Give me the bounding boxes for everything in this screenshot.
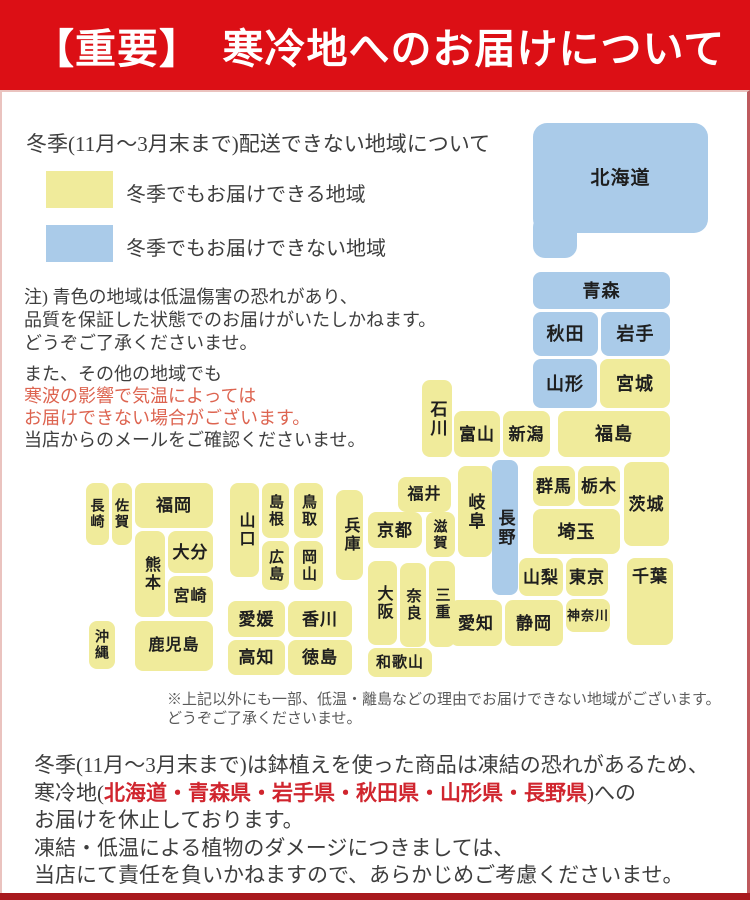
prefecture-shiga: 滋賀 (426, 512, 455, 557)
text-line: 寒冷地(北海道・青森県・岩手県・秋田県・山形県・長野県)への (34, 780, 709, 808)
text-line: どうぞご了承くださいませ。 (167, 710, 721, 729)
prefecture-hyogo: 兵庫 (336, 490, 363, 580)
prefecture-aichi: 愛知 (450, 600, 502, 646)
prefecture-okayama: 岡山 (294, 541, 323, 590)
prefecture-yamanashi: 山梨 (519, 558, 563, 596)
plain-text: 寒冷地( (34, 781, 104, 805)
prefecture-saga: 佐賀 (112, 483, 132, 545)
prefecture-iwate: 岩手 (601, 312, 670, 356)
prefecture-miyagi: 宮城 (600, 359, 670, 408)
prefecture-aomori: 青森 (533, 272, 670, 309)
prefecture-hiroshima: 広島 (262, 541, 289, 590)
plain-text: お届けを休止しております。 (34, 808, 304, 832)
highlighted-text: 北海道・青森県・岩手県・秋田県・山形県・長野県 (104, 781, 587, 805)
prefecture-ishikawa: 石川 (422, 380, 452, 457)
prefecture-fukui: 福井 (398, 477, 451, 512)
prefecture-mie: 三重 (429, 561, 455, 647)
text-line: ※上記以外にも一部、低温・離島などの理由でお届けできない地域がございます。 (167, 691, 721, 710)
prefecture-toyama: 富山 (454, 411, 500, 457)
prefecture-kyoto: 京都 (368, 512, 422, 548)
text-line: 凍結・低温による植物のダメージにつきましては、 (34, 835, 709, 863)
prefecture-tokushima: 徳島 (288, 640, 352, 675)
prefecture-kanagawa: 神奈川 (566, 599, 610, 632)
plain-text: 冬季(11月～3月末まで)は鉢植えを使った商品は凍結の恐れがあるため、 (34, 753, 709, 777)
prefecture-akita: 秋田 (533, 312, 598, 356)
prefecture-niigata: 新潟 (503, 411, 550, 457)
prefecture-tochigi: 栃木 (578, 466, 620, 506)
prefecture-oita: 大分 (168, 531, 213, 573)
text-line: 冬季(11月～3月末まで)は鉢植えを使った商品は凍結の恐れがあるため、 (34, 752, 709, 780)
prefecture-gunma: 群馬 (533, 466, 575, 506)
prefecture-yamagata: 山形 (533, 359, 597, 408)
prefecture-fukuoka: 福岡 (135, 483, 213, 528)
prefecture-gifu: 岐阜 (458, 466, 492, 557)
prefecture-tottori: 鳥取 (294, 483, 323, 538)
prefecture-nara: 奈良 (400, 563, 426, 647)
prefecture-ibaraki: 茨城 (624, 462, 669, 546)
prefecture-kumamoto: 熊本 (135, 531, 165, 617)
footer-bar (0, 893, 750, 900)
prefecture-tokyo: 東京 (566, 558, 608, 596)
map-footnote: ※上記以外にも一部、低温・離島などの理由でお届けできない地域がございます。どうぞ… (167, 691, 721, 729)
prefecture-hokkaido: 北海道 (533, 123, 708, 233)
prefecture-miyazaki: 宮崎 (168, 576, 213, 617)
prefecture-nagano: 長野 (492, 460, 518, 595)
prefecture-kochi: 高知 (228, 640, 285, 675)
prefecture-wakayama: 和歌山 (368, 648, 432, 677)
prefecture-okinawa: 沖縄 (89, 621, 115, 669)
text-line: 当店にて責任を負いかねますので、あらかじめご考慮くださいませ。 (34, 862, 709, 890)
prefecture-yamaguchi: 山口 (230, 483, 259, 577)
prefecture-fukushima: 福島 (558, 411, 670, 457)
plain-text: 当店にて責任を負いかねますので、あらかじめご考慮くださいませ。 (34, 863, 684, 887)
text-line: お届けを休止しております。 (34, 807, 709, 835)
prefecture-shimane: 島根 (262, 483, 289, 538)
prefecture-saitama: 埼玉 (533, 509, 620, 554)
footer-paragraph: 冬季(11月～3月末まで)は鉢植えを使った商品は凍結の恐れがあるため、寒冷地(北… (34, 752, 709, 890)
prefecture-chiba: 千葉 (627, 558, 673, 645)
prefecture-shizuoka: 静岡 (505, 600, 563, 646)
prefecture-kagawa: 香川 (288, 601, 352, 637)
plain-text: )への (587, 781, 636, 805)
plain-text: 凍結・低温による植物のダメージにつきましては、 (34, 836, 514, 860)
prefecture-nagasaki: 長崎 (86, 483, 109, 545)
prefecture-ehime: 愛媛 (228, 601, 285, 637)
prefecture-kagoshima: 鹿児島 (135, 621, 213, 671)
prefecture-osaka: 大阪 (368, 561, 397, 645)
